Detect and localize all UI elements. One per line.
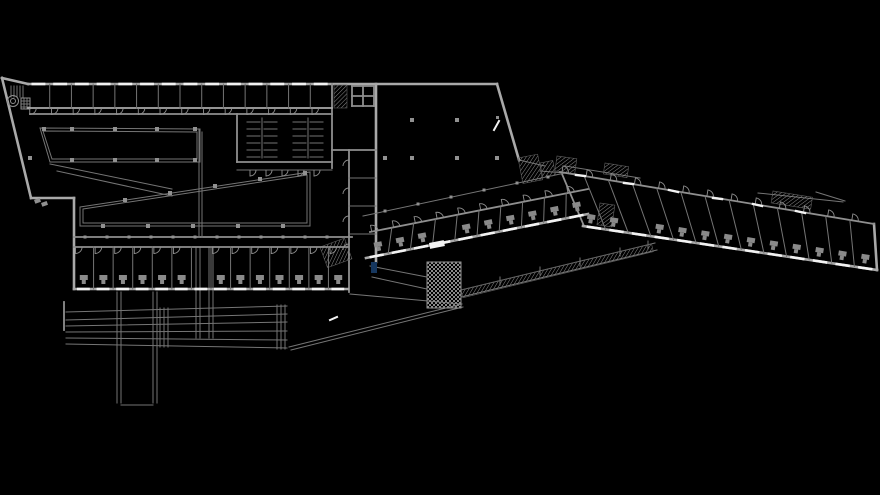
door-swing-icon	[154, 247, 161, 254]
hatch-area-check	[427, 262, 461, 308]
toilet-fixture-icon	[572, 202, 582, 212]
middle-wing-band-window	[393, 250, 405, 252]
hatch-area-dense	[461, 244, 653, 298]
middle-wing-band-partition	[388, 228, 392, 254]
corridor-post	[304, 236, 307, 239]
toilet-fixture-icon	[334, 275, 342, 284]
right-wing-band-window	[837, 264, 849, 266]
right-wing-band-window	[724, 247, 736, 249]
toilet-fixture-icon	[550, 206, 560, 216]
hatch-area-dense	[334, 85, 347, 108]
corridor-post	[450, 196, 453, 199]
fixture-tank	[611, 222, 616, 227]
fixture-tank	[82, 280, 86, 284]
hall-opening-1-inner	[43, 131, 197, 159]
column	[495, 156, 499, 160]
corridor-post	[84, 236, 87, 239]
column	[191, 224, 195, 228]
column	[70, 158, 74, 162]
fixture-tank	[258, 280, 262, 284]
fixture-tank	[839, 256, 844, 261]
floor-plan-canvas	[0, 0, 880, 495]
fixture-body	[506, 215, 515, 221]
top-room-band	[28, 84, 332, 115]
toilet-fixture-icon	[462, 224, 472, 234]
wall-thin	[50, 164, 172, 189]
fixture-tank	[238, 280, 242, 284]
spiral-stair-icon	[11, 99, 16, 104]
wall-thick	[874, 224, 877, 270]
corridor-post	[216, 236, 219, 239]
wall-thin	[66, 331, 287, 332]
right-wing-band-partition	[826, 216, 832, 263]
fixture-tank	[141, 280, 145, 284]
fixture-tank	[121, 280, 125, 284]
fixture-tank	[862, 259, 867, 264]
middle-wing-band-partition	[499, 206, 501, 231]
window	[713, 198, 722, 199]
fixture-tank	[817, 252, 822, 257]
right-wing-band-partition	[705, 196, 719, 246]
fixture-tank	[336, 280, 340, 284]
toilet-fixture-icon	[315, 275, 323, 284]
toilet-stalls-layer	[247, 118, 323, 158]
fixture-tank	[702, 236, 707, 241]
corridor-post	[547, 176, 550, 179]
wall-thin	[66, 306, 287, 312]
door-swing-icon	[134, 247, 141, 254]
door-swing-icon	[266, 170, 272, 176]
middle-wing-band-window	[526, 224, 538, 226]
toilet-fixture-icon	[860, 254, 869, 264]
fixture-tank	[376, 247, 381, 252]
column	[70, 127, 74, 131]
fixture-tank	[399, 242, 404, 247]
column	[303, 171, 307, 175]
middle-wing-band-partition	[433, 219, 436, 245]
column	[193, 158, 197, 162]
toilet-fixture-icon	[655, 224, 664, 234]
toilet-fixture-icon	[158, 275, 166, 284]
door-swing-icon	[173, 247, 180, 254]
column	[101, 224, 105, 228]
fixture-tank	[160, 280, 164, 284]
middle-wing-band-window	[371, 255, 383, 257]
wall-thin	[66, 322, 287, 326]
fixture-body	[139, 275, 147, 280]
right-wing-band-window	[611, 230, 623, 232]
column	[455, 156, 459, 160]
hatch-area-dense	[540, 161, 556, 178]
hatch-area-dense	[518, 154, 543, 183]
fixture-body	[815, 247, 824, 253]
middle-wing-band-window	[415, 246, 427, 248]
fixture-body	[256, 275, 264, 280]
door-swing-icon	[95, 247, 102, 254]
toilet-fixture-icon	[418, 232, 428, 242]
white-mark	[330, 317, 337, 320]
fixture-body	[838, 250, 847, 256]
fixture-body	[295, 275, 303, 280]
column	[410, 118, 414, 122]
corridor-post	[417, 203, 420, 206]
fixture-tank	[421, 238, 426, 243]
column	[455, 118, 459, 122]
fixture-tank	[748, 242, 753, 247]
column	[155, 158, 159, 162]
middle-wing-band-partition	[410, 223, 413, 249]
fixture-tank	[219, 280, 223, 284]
right-wing-band-partition	[777, 208, 786, 256]
navy-element	[371, 262, 377, 273]
left-wing-band	[74, 247, 348, 289]
corridor-post	[260, 236, 263, 239]
right-wing-band-window	[746, 250, 758, 252]
toilet-fixture-icon	[217, 275, 225, 284]
corridor-post	[106, 236, 109, 239]
corridor-post	[483, 189, 486, 192]
fixture-tank	[101, 280, 105, 284]
door-swing-icon	[213, 247, 220, 254]
spiral-stair-layer	[8, 96, 19, 107]
toilet-fixture-icon	[746, 237, 755, 247]
toilet-fixture-icon	[723, 234, 732, 244]
column	[123, 198, 127, 202]
corridor-post	[326, 236, 329, 239]
right-wing-band-window	[656, 237, 668, 239]
toilet-fixture-icon	[396, 237, 406, 247]
toilet-fixture-icon	[769, 240, 778, 250]
toilet-fixture-icon	[119, 275, 127, 284]
gray-element	[496, 116, 499, 119]
fixture-tank	[725, 239, 730, 244]
fixture-body	[158, 275, 166, 280]
middle-wing-band-partition	[455, 215, 457, 241]
fixture-body	[550, 206, 559, 212]
fixture-tank	[588, 219, 593, 224]
toilet-fixture-icon	[528, 210, 538, 220]
door-swing-icon	[250, 170, 256, 176]
column	[113, 127, 117, 131]
middle-wing-band-partition	[477, 211, 479, 237]
toilet-fixture-icon	[80, 275, 88, 284]
right-wing-band-window	[633, 234, 645, 236]
fixture-body	[678, 227, 687, 233]
middle-wing-band-partition	[521, 202, 522, 227]
fixture-body	[178, 275, 186, 280]
right-wing-band-partition	[850, 220, 855, 267]
right-wing-band-window	[814, 261, 826, 263]
fixture-body	[792, 244, 801, 250]
fixture-tank	[465, 229, 470, 234]
right-wing-band-window	[859, 267, 871, 269]
white-element	[429, 240, 445, 249]
toilet-fixture-icon	[506, 215, 516, 225]
special-rects-layer	[34, 116, 499, 273]
column	[213, 184, 217, 188]
fixture-body	[119, 275, 127, 280]
toilet-fixture-icon	[586, 214, 595, 224]
right-wing-band-window	[678, 240, 690, 242]
middle-wing-band	[366, 185, 588, 258]
fixture-body	[701, 230, 710, 236]
spiral-stair-icon	[8, 96, 19, 107]
column	[28, 156, 32, 160]
column	[168, 191, 172, 195]
fixture-tank	[487, 224, 492, 229]
toilet-fixture-icon	[700, 230, 709, 240]
door-swing-icon	[314, 170, 320, 176]
hatch-area-dense	[603, 163, 628, 178]
column	[236, 224, 240, 228]
toilet-fixture-icon	[236, 275, 244, 284]
fixture-body	[80, 275, 88, 280]
fixture-body	[99, 275, 107, 280]
wall-thin	[57, 171, 172, 196]
toilet-fixture-icon	[815, 247, 824, 257]
column	[113, 158, 117, 162]
fixture-tank	[553, 211, 558, 216]
toilet-fixture-icon	[295, 275, 303, 284]
fixture-body	[217, 275, 225, 280]
fixture-body	[484, 219, 493, 225]
middle-wing-band-partition	[544, 198, 545, 223]
right-wing-band-window	[769, 254, 781, 256]
fixture-body	[655, 224, 664, 230]
fixture-body	[396, 237, 405, 243]
fixture-body	[236, 275, 244, 280]
wall-thick	[497, 84, 519, 160]
toilet-fixture-icon	[837, 250, 846, 260]
fixture-body	[769, 240, 778, 246]
fixture-tank	[317, 280, 321, 284]
wall-thin	[66, 338, 287, 340]
corridor-post	[128, 236, 131, 239]
fixture-tank	[509, 220, 514, 225]
door-swing-icon	[232, 247, 239, 254]
column	[42, 127, 46, 131]
corridor-post	[172, 236, 175, 239]
right-wing-band-partition	[753, 204, 764, 253]
wall-thin	[370, 266, 427, 277]
right-wing-band-partition	[729, 200, 741, 250]
column	[410, 156, 414, 160]
middle-wing-band-window	[460, 237, 472, 239]
cad-floorplan-viewport[interactable]	[0, 0, 880, 495]
fixture-tank	[575, 207, 580, 212]
fixture-body	[861, 254, 870, 260]
fixture-body	[334, 275, 342, 280]
toilet-fixture-icon	[276, 275, 284, 284]
right-wing-band-partition	[632, 184, 650, 236]
fixture-body	[462, 224, 471, 230]
door-swing-icon	[310, 247, 317, 254]
right-wing-band-partition	[584, 176, 605, 229]
fixture-tank	[657, 229, 662, 234]
fixture-tank	[679, 232, 684, 237]
fixture-tank	[794, 249, 799, 254]
toilet-fixture-icon	[99, 275, 107, 284]
fixture-tank	[180, 280, 184, 284]
column	[146, 224, 150, 228]
fixture-tank	[771, 246, 776, 251]
column	[258, 177, 262, 181]
hall-opening-1-outer	[40, 128, 200, 162]
wall-thick	[2, 78, 28, 84]
window	[669, 190, 678, 192]
gray-element	[41, 201, 48, 207]
middle-wing-band-window	[548, 220, 560, 222]
column	[281, 224, 285, 228]
column	[155, 127, 159, 131]
fixture-body	[747, 237, 756, 243]
door-swing-icon	[76, 247, 83, 254]
middle-wing-band-window	[504, 228, 516, 230]
column	[383, 156, 387, 160]
hall-opening-2-inner	[83, 175, 307, 223]
fixture-body	[724, 234, 733, 240]
corridor-post	[238, 236, 241, 239]
door-swing-icon	[291, 247, 298, 254]
corridor-post	[150, 236, 153, 239]
right-wing-band-window	[792, 257, 804, 259]
corridor-post	[384, 210, 387, 213]
door-swing-icon	[271, 247, 278, 254]
fixture-tank	[531, 216, 536, 221]
corridor-post	[194, 236, 197, 239]
column	[193, 127, 197, 131]
window	[753, 204, 762, 206]
fixture-body	[418, 232, 427, 238]
toilet-fixture-icon	[792, 244, 801, 254]
hatch-area-dense	[555, 156, 577, 174]
wall-thin	[289, 304, 462, 347]
corridor-post	[282, 236, 285, 239]
right-wing-band-partition	[802, 212, 810, 260]
door-swing-icon	[252, 247, 258, 254]
toilet-fixture-icon	[178, 275, 186, 284]
right-wing-band-window	[588, 227, 600, 229]
wall-thin	[66, 314, 287, 320]
wall-thin	[66, 344, 287, 348]
fixture-tank	[297, 280, 301, 284]
toilet-fixture-icon	[677, 227, 686, 237]
corridor-post	[516, 182, 519, 185]
wall-thin	[291, 307, 463, 350]
toilet-fixture-icon	[256, 275, 264, 284]
fixture-tank	[278, 280, 282, 284]
white-mark	[494, 121, 499, 130]
window	[624, 183, 633, 184]
middle-wing-band-window	[482, 233, 494, 235]
fixture-body	[528, 210, 537, 216]
wall-thin	[372, 277, 427, 289]
right-wing-band-window	[701, 244, 713, 246]
door-swing-icon	[115, 247, 122, 254]
window	[576, 175, 585, 176]
hatch-area-dense	[320, 238, 352, 268]
fixture-body	[587, 214, 596, 220]
toilet-fixture-icon	[139, 275, 147, 284]
toilet-fixture-icon	[484, 219, 494, 229]
fixture-body	[315, 275, 323, 280]
fixture-body	[276, 275, 284, 280]
